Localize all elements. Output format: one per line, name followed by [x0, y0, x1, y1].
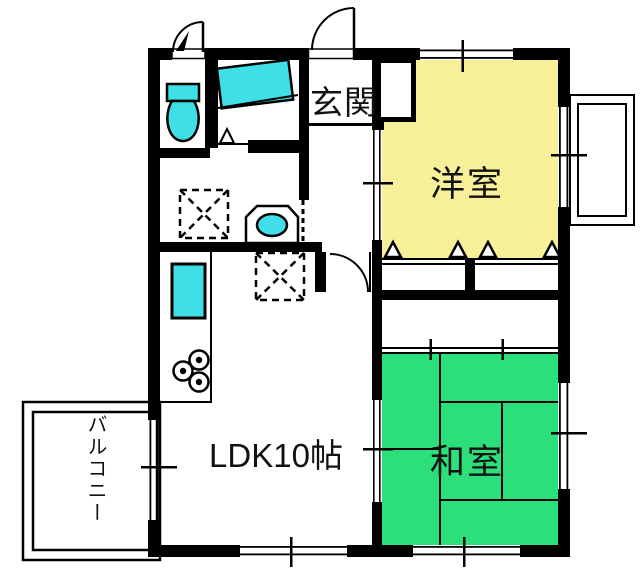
stove-icon	[174, 351, 209, 392]
label-ldk: LDK10帖	[200, 429, 352, 477]
kitchen-sink-icon	[172, 264, 205, 318]
bathtub-icon	[217, 60, 298, 108]
label-western-room: 洋室	[425, 156, 509, 207]
floor-plan: 玄関 洋室 和室 LDK10帖 バルコニー	[0, 0, 640, 571]
label-genkan: 玄関	[308, 76, 380, 124]
toilet-door	[172, 22, 205, 59]
ldk-door	[315, 252, 368, 292]
shoe-cabinet	[376, 58, 416, 122]
refrigerator-space-icon	[256, 253, 304, 300]
bay-window-outline	[570, 95, 634, 225]
western-room-fill-upper	[416, 60, 558, 120]
washing-machine-space-icon	[180, 190, 228, 238]
toilet-icon	[167, 84, 199, 141]
entrance-door	[309, 8, 355, 59]
bath-door-mark	[220, 129, 234, 143]
label-japanese-room: 和室	[425, 434, 509, 485]
label-balcony: バルコニー	[81, 414, 110, 554]
washbasin-icon	[246, 206, 298, 243]
